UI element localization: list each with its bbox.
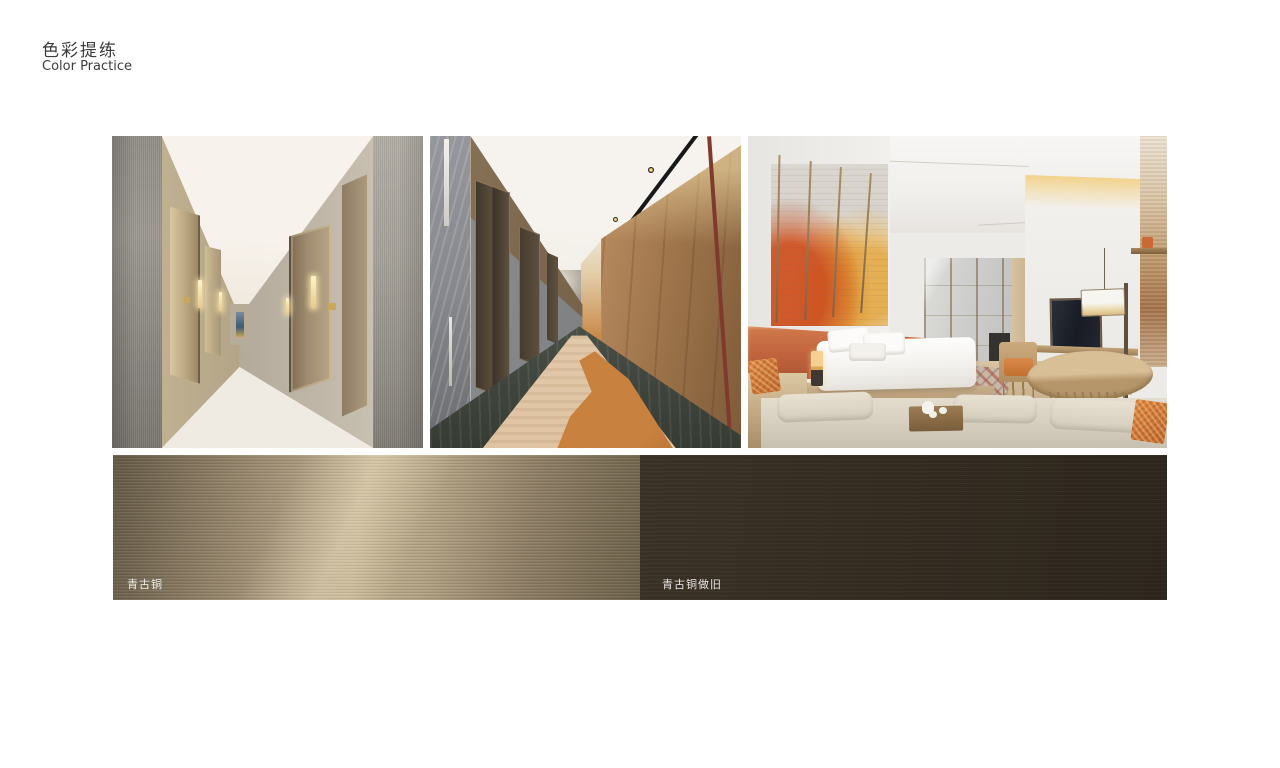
room-number-plate <box>328 303 335 310</box>
corridor-near-left-wall <box>112 136 162 448</box>
elevator-door <box>547 252 558 344</box>
page-subtitle: Color Practice <box>42 59 132 74</box>
rendering-guestroom-corridor <box>112 136 423 448</box>
pendant-rod <box>1104 248 1105 292</box>
guestroom-door <box>342 174 367 416</box>
page-title: 色彩提练 <box>42 36 118 61</box>
ceiling-downlight <box>648 167 654 173</box>
backlit-strip <box>449 317 453 386</box>
orange-accent-pillow <box>748 357 782 395</box>
bed-pillow <box>849 343 887 360</box>
orange-accent-pillow <box>1131 399 1167 444</box>
rendering-elevator-lobby <box>430 136 741 448</box>
color-practice-slide: 色彩提练 Color Practice <box>0 0 1280 768</box>
corridor-end-artwork <box>236 312 244 337</box>
swatch-label: 青古铜做旧 <box>662 576 722 592</box>
sofa-cushion <box>777 392 874 423</box>
wall-sconce-light <box>311 276 316 307</box>
wall-sconce-light <box>219 292 221 311</box>
tea-tray <box>909 405 964 431</box>
elevator-door <box>519 225 540 366</box>
wall-sconce-light <box>286 298 288 314</box>
shelf-ornament <box>1142 237 1153 248</box>
room-number-plate <box>184 297 191 303</box>
swatch-label: 青古铜 <box>127 576 163 592</box>
sofa-cushion <box>1049 397 1143 433</box>
pendant-lamp <box>1081 288 1126 316</box>
wall-shelf <box>1131 248 1167 254</box>
bedside-lamp <box>811 351 824 385</box>
tea-cup <box>929 411 937 418</box>
guestroom-door <box>289 223 331 392</box>
material-swatch-bronze-antique: 青古铜做旧 <box>640 455 1167 600</box>
material-swatch-bronze: 青古铜 <box>113 455 640 600</box>
corridor-near-right-wall <box>373 136 423 448</box>
backlit-strip <box>444 139 449 226</box>
sofa-cushion <box>953 394 1037 424</box>
rendering-guestroom-bedroom <box>748 136 1167 448</box>
tea-cup <box>939 407 947 414</box>
marble-pier <box>430 136 470 448</box>
elevator-door <box>475 180 510 401</box>
guestroom-door <box>170 206 200 384</box>
cove-light <box>1024 175 1140 210</box>
wall-sconce-light <box>198 280 202 308</box>
